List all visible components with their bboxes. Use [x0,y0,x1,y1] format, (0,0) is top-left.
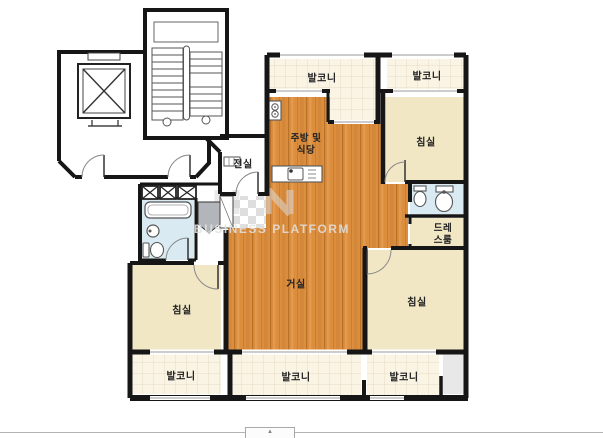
toilet-left-bowl [151,243,164,258]
label-kitchen-line2: 식당 [297,142,315,156]
door-arc [82,155,104,177]
label-living-room: 거실 [286,276,305,291]
chevron-up-icon: ▲ [267,428,273,437]
door-arc [168,155,190,177]
label-balcony-bottom-right: 발코니 [389,369,418,384]
bathtub [145,202,191,218]
ac-unit-area [443,354,466,394]
toilet-left-tank [143,243,149,257]
label-balcony-bottom-left: 발코니 [166,368,195,383]
label-balcony-top-left: 발코니 [307,70,336,85]
label-vestibule: 전실 [233,156,252,171]
stair-newel [163,118,171,126]
label-bedroom-top-right: 침실 [416,134,435,149]
label-bedroom-bottom-right: 침실 [407,294,426,309]
label-balcony-top-right: 발코니 [412,68,441,83]
watermark-text: BUSINESS PLATFORM [194,222,350,236]
label-dressroom-line2: 스룸 [434,232,452,246]
toilet-right-tank [414,186,426,191]
panel-collapse-button[interactable]: ▲ [245,427,295,438]
duct-shafts [142,186,196,199]
label-bedroom-bottom-left: 침실 [172,302,191,317]
core-block [59,10,227,177]
bottom-divider-line [0,432,603,433]
floor-plan-page: 발코니 발코니 주방 및 식당 침실 전실 거실 드레 스룸 침실 침실 발코니… [0,0,603,438]
toilet-right-bowl [414,192,426,207]
label-balcony-bottom-center: 발코니 [281,369,310,384]
sink-right-basin [436,193,453,212]
stair-newel [202,116,210,124]
